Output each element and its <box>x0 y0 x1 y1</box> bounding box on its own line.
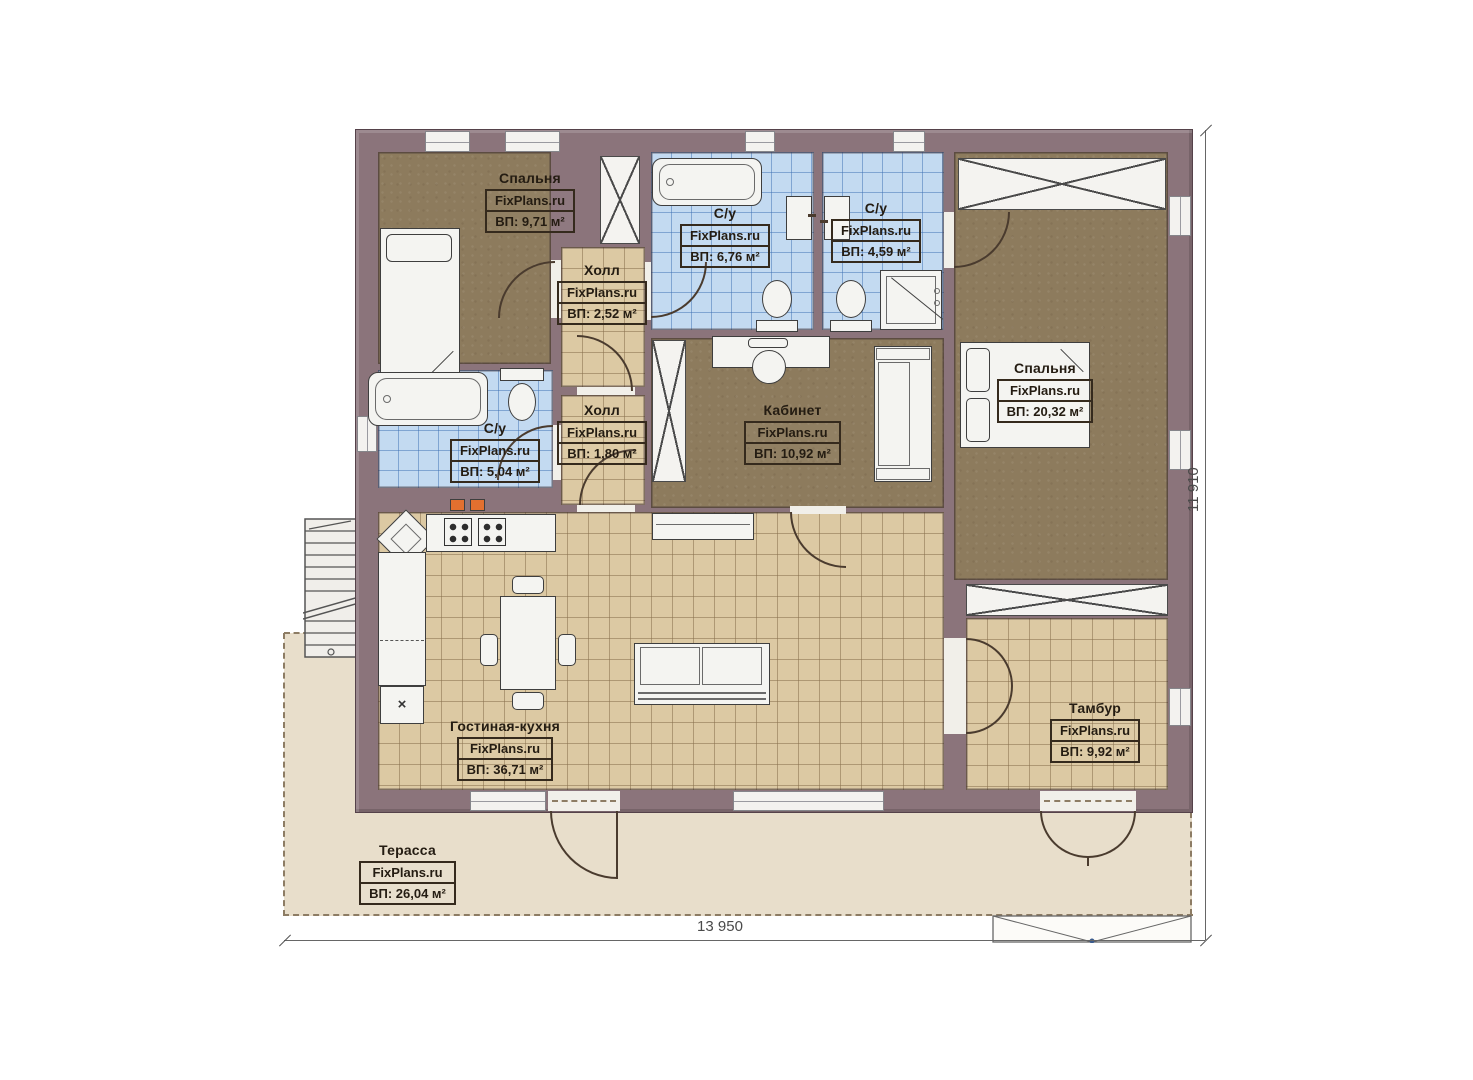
brand-label: FixPlans.ru <box>833 221 919 240</box>
kitchen-vent-icon <box>450 499 465 511</box>
toilet-icon <box>756 320 798 332</box>
brand-label: FixPlans.ru <box>459 739 552 758</box>
area-label: ВП: 1,80 м² <box>559 442 645 463</box>
brand-label: FixPlans.ru <box>452 441 538 460</box>
area-label: ВП: 36,71 м² <box>459 758 552 779</box>
window <box>505 131 560 152</box>
sink-icon <box>786 196 812 240</box>
dimension-line-vertical <box>1205 130 1206 940</box>
area-label: ВП: 9,71 м² <box>487 210 573 231</box>
brand-label: FixPlans.ru <box>487 191 573 210</box>
toilet-bowl <box>762 280 792 318</box>
brand-label: FixPlans.ru <box>1052 721 1138 740</box>
brand-label: FixPlans.ru <box>559 283 645 302</box>
wardrobe-icon <box>958 158 1166 210</box>
room-name: Кабинет <box>730 402 855 418</box>
room-label-vestibule: Тамбур FixPlans.ru ВП: 9,92 м² <box>1035 700 1155 763</box>
bathtub-drain <box>666 178 674 186</box>
room-label-bedroom-left: Спальня FixPlans.ru ВП: 9,71 м² <box>455 170 605 233</box>
door-opening <box>944 212 954 268</box>
room-name: С/у <box>826 200 926 216</box>
toilet-icon <box>500 368 544 381</box>
room-label-office: Кабинет FixPlans.ru ВП: 10,92 м² <box>730 402 855 465</box>
toilet-bowl <box>508 383 536 421</box>
dimension-label-height: 11 910 <box>1185 440 1202 540</box>
door-opening <box>944 638 966 734</box>
area-label: ВП: 10,92 м² <box>746 442 839 463</box>
chair-icon <box>512 692 544 710</box>
office-chair-icon <box>752 350 786 384</box>
brand-label: FixPlans.ru <box>361 863 454 882</box>
fridge-icon: × <box>380 686 424 724</box>
dining-table-icon <box>500 596 556 690</box>
window <box>425 131 470 152</box>
vent-shaft-icon <box>600 156 640 244</box>
room-label-living-kitchen: Гостиная-кухня FixPlans.ru ВП: 36,71 м² <box>425 718 585 781</box>
door-opening <box>577 505 635 512</box>
room-label-bath-504: С/у FixPlans.ru ВП: 5,04 м² <box>445 420 545 483</box>
brand-label: FixPlans.ru <box>559 423 645 442</box>
tv-stand-doors <box>656 524 750 525</box>
room-name: Тамбур <box>1035 700 1155 716</box>
kitchen-vent-icon <box>470 499 485 511</box>
dimension-label-width: 13 950 <box>660 918 780 935</box>
stove-icon <box>444 518 472 546</box>
room-name: Спальня <box>975 360 1115 376</box>
dimension-tick <box>1200 124 1212 136</box>
chair-icon <box>558 634 576 666</box>
toilet-icon <box>830 320 872 332</box>
terrace-border <box>1190 812 1192 915</box>
wardrobe-icon <box>652 340 686 482</box>
area-label: ВП: 9,92 м² <box>1052 740 1138 761</box>
door-leaf <box>1087 856 1089 866</box>
threshold <box>1044 800 1132 802</box>
wardrobe-icon <box>966 584 1168 616</box>
sofa-seat <box>878 362 910 466</box>
floor-plan-canvas: × Спальня FixPlans.ru ВП: 9,71 м² С/у Fi… <box>0 0 1473 1080</box>
bathtub-drain <box>383 395 391 403</box>
room-label-hall-180: Холл FixPlans.ru ВП: 1,80 м² <box>552 402 652 465</box>
brand-label: FixPlans.ru <box>682 226 768 245</box>
room-label-bath-459: С/у FixPlans.ru ВП: 4,59 м² <box>826 200 926 263</box>
window <box>745 131 775 152</box>
shower-tray <box>886 276 936 324</box>
entrance-steps-icon <box>992 915 1192 943</box>
terrace-border <box>283 633 285 916</box>
sofa-armrest <box>876 348 930 360</box>
threshold <box>552 800 616 802</box>
room-name: Гостиная-кухня <box>425 718 585 734</box>
room-label-bath-676: С/у FixPlans.ru ВП: 6,76 м² <box>675 205 775 268</box>
faucet-icon <box>808 214 816 217</box>
office-chair-back <box>748 338 788 348</box>
kitchen-counter-icon <box>378 552 426 686</box>
area-label: ВП: 2,52 м² <box>559 302 645 323</box>
window <box>893 131 925 152</box>
terrace-area <box>284 633 356 916</box>
room-name: С/у <box>675 205 775 221</box>
sofa-cushion <box>640 647 700 685</box>
area-label: ВП: 4,59 м² <box>833 240 919 261</box>
room-name: С/у <box>445 420 545 436</box>
chair-icon <box>480 634 498 666</box>
room-name: Терасса <box>350 842 465 858</box>
window <box>1169 196 1191 236</box>
brand-label: FixPlans.ru <box>746 423 839 442</box>
area-label: ВП: 6,76 м² <box>682 245 768 266</box>
sofa-back <box>638 698 766 700</box>
room-label-terrace: Терасса FixPlans.ru ВП: 26,04 м² <box>350 842 465 905</box>
dimension-line-horizontal <box>284 940 1205 941</box>
pillow-icon <box>386 234 452 262</box>
chair-icon <box>512 576 544 594</box>
room-name: Холл <box>552 262 652 278</box>
area-label: ВП: 20,32 м² <box>999 400 1092 421</box>
stairs-icon <box>303 517 359 659</box>
area-label: ВП: 26,04 м² <box>361 882 454 903</box>
brand-label: FixPlans.ru <box>999 381 1092 400</box>
door-leaf <box>616 811 618 879</box>
sofa-back <box>638 692 766 694</box>
room-label-hall-252: Холл FixPlans.ru ВП: 2,52 м² <box>552 262 652 325</box>
stove-icon <box>478 518 506 546</box>
counter-divider <box>380 640 424 641</box>
room-name: Холл <box>552 402 652 418</box>
window <box>470 791 546 811</box>
shower-valve <box>934 300 940 306</box>
sofa-cushion <box>702 647 762 685</box>
fridge-symbol: × <box>398 696 407 713</box>
area-label: ВП: 5,04 м² <box>452 460 538 481</box>
shower-valve <box>934 288 940 294</box>
window <box>733 791 884 811</box>
tv-stand-icon <box>652 513 754 540</box>
toilet-bowl <box>836 280 866 318</box>
window <box>1169 688 1191 726</box>
sofa-armrest <box>876 468 930 480</box>
room-label-bedroom-right: Спальня FixPlans.ru ВП: 20,32 м² <box>975 360 1115 423</box>
room-name: Спальня <box>455 170 605 186</box>
